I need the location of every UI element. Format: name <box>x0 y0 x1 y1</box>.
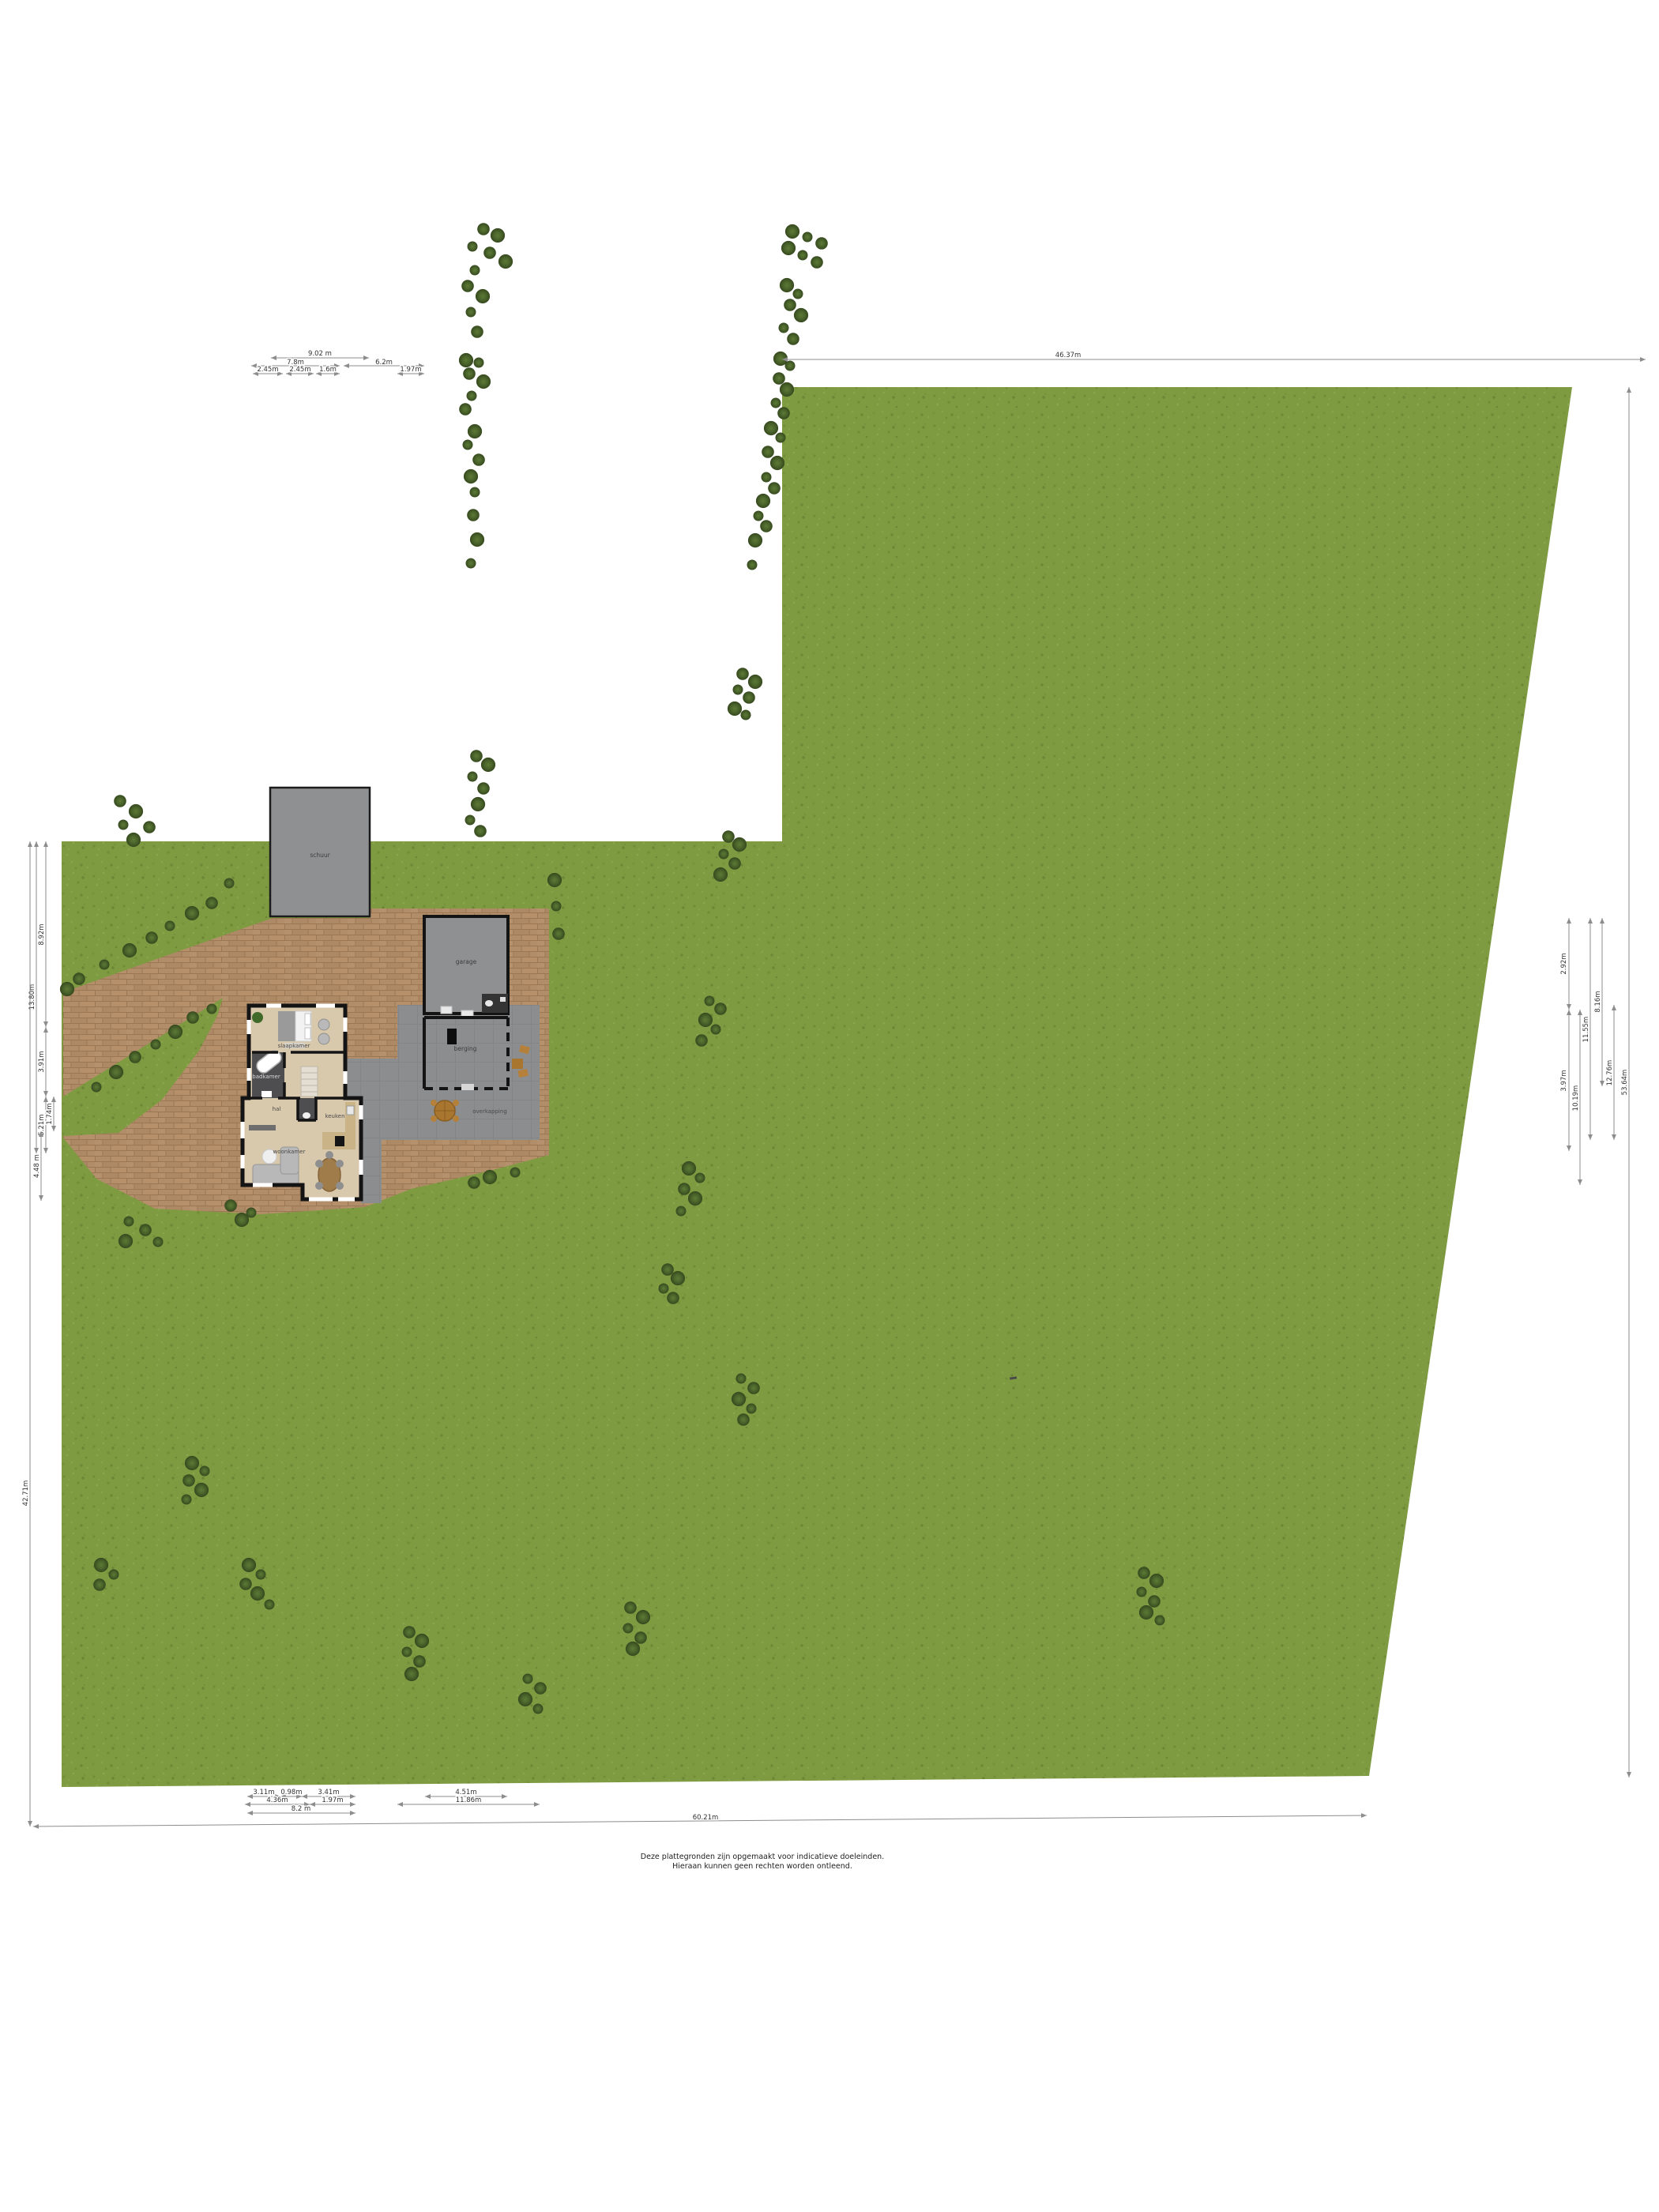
chair <box>318 1019 329 1030</box>
tree <box>811 256 823 269</box>
tree <box>461 280 474 292</box>
chair <box>318 1033 329 1044</box>
disclaimer-line1: Deze plattegronden zijn opgemaakt voor i… <box>641 1853 884 1861</box>
tree <box>471 797 485 811</box>
tree <box>682 1161 696 1176</box>
door-mat <box>441 1006 452 1014</box>
tree <box>626 1642 640 1656</box>
tree <box>661 1263 674 1276</box>
tree <box>476 374 491 389</box>
tree <box>741 710 751 720</box>
tree <box>518 1692 532 1706</box>
hall-label: hal <box>273 1106 281 1112</box>
tree <box>182 1474 195 1487</box>
tree <box>60 982 74 996</box>
tree <box>552 927 565 940</box>
tree <box>470 487 480 498</box>
dimension-label: 46.37m <box>1055 352 1082 359</box>
tree <box>185 1456 199 1470</box>
tree <box>265 1600 275 1610</box>
tree <box>776 433 786 443</box>
dimension-label: 0.98m <box>280 1789 302 1796</box>
dimension-label: 2.45m <box>289 366 310 374</box>
dimension-label: 3.97m <box>1560 1070 1568 1091</box>
dimension-label: 5.21m <box>38 1114 46 1135</box>
tree <box>404 1667 419 1681</box>
dimension-label: 2.45m <box>257 366 278 374</box>
tree <box>470 532 484 547</box>
tree <box>468 772 478 782</box>
tree <box>224 1199 237 1212</box>
tree <box>498 254 513 269</box>
shed-label: schuur <box>310 852 330 859</box>
tree <box>468 424 482 438</box>
tree <box>748 533 762 547</box>
living-label: woonkamer <box>273 1149 306 1155</box>
tree <box>481 758 495 772</box>
tree <box>109 1570 119 1580</box>
tree <box>143 821 156 833</box>
tree <box>728 857 741 870</box>
tree <box>242 1558 256 1572</box>
dimension-label: 1.97m <box>400 366 421 374</box>
tree <box>1148 1595 1161 1608</box>
dimension-label: 1.74m <box>46 1103 54 1124</box>
tree <box>534 1682 547 1695</box>
tree <box>794 308 808 322</box>
tree <box>94 1558 108 1572</box>
tree <box>403 1626 416 1638</box>
dimension-label: 1.97m <box>322 1796 343 1804</box>
tree <box>736 668 749 680</box>
tree <box>1149 1574 1164 1588</box>
dimension-label: 11.86m <box>456 1796 482 1804</box>
dimension-label: 3.41m <box>318 1789 339 1796</box>
tree <box>118 1234 133 1248</box>
tree <box>551 901 562 912</box>
tree <box>168 1025 182 1039</box>
tree <box>109 1065 123 1079</box>
tree <box>186 1011 199 1024</box>
tree <box>523 1674 533 1684</box>
cooktop <box>335 1136 344 1146</box>
dimension-label: 11.55m <box>1582 1017 1590 1043</box>
tree <box>748 675 762 689</box>
tree <box>780 382 794 397</box>
site-plan: schuur garage berging overkapping <box>0 0 1659 2212</box>
bathroom-sink <box>261 1091 272 1097</box>
tree <box>547 873 562 887</box>
house: slaapkamer badkamer hal keuken woonkamer <box>243 1006 361 1199</box>
dimension-label: 2.92m <box>1560 953 1568 974</box>
tree <box>459 403 472 416</box>
tree <box>768 482 781 495</box>
tree <box>1137 1587 1147 1597</box>
stove <box>447 1029 457 1044</box>
tree <box>636 1610 650 1624</box>
tree <box>770 456 784 470</box>
tree <box>815 237 828 250</box>
tree <box>472 453 485 466</box>
tree <box>722 830 735 843</box>
tree <box>182 1495 192 1505</box>
tree <box>736 1374 747 1384</box>
chair <box>336 1182 344 1190</box>
tree <box>139 1224 152 1236</box>
tree <box>676 1206 687 1217</box>
tree <box>239 1578 252 1590</box>
tree <box>466 559 476 569</box>
tree <box>784 299 796 311</box>
tree <box>474 825 487 837</box>
disclaimer: Deze plattegronden zijn opgemaakt voor i… <box>641 1853 884 1871</box>
tree <box>634 1631 647 1644</box>
dimension-label: 53.64m <box>1621 1070 1629 1096</box>
tree <box>250 1586 265 1601</box>
tree <box>145 931 158 944</box>
tree <box>785 224 799 239</box>
tree <box>510 1168 521 1178</box>
tree <box>468 1176 480 1189</box>
tree <box>92 1082 102 1093</box>
tree <box>762 472 772 483</box>
dimension-label: 4.48 m <box>33 1154 41 1178</box>
tree <box>100 960 110 970</box>
tree <box>1138 1567 1150 1579</box>
dimension-label: 3.11m <box>253 1789 274 1796</box>
tree <box>732 1392 746 1406</box>
door-mat <box>461 1084 474 1090</box>
tree <box>705 996 715 1006</box>
tree <box>470 265 480 276</box>
dimension-label: 3.91m <box>38 1051 46 1072</box>
tree <box>780 278 794 292</box>
tree <box>474 358 484 368</box>
tree <box>719 849 729 860</box>
tree <box>667 1292 679 1304</box>
tree <box>471 325 483 338</box>
tree <box>698 1013 713 1027</box>
dimension-label: 4.51m <box>455 1789 476 1796</box>
tree <box>756 494 770 508</box>
tree <box>129 1051 141 1063</box>
tree <box>477 223 490 235</box>
dimension-label: 8.2 m <box>292 1805 311 1813</box>
dimension-label: 8.16m <box>1594 991 1602 1012</box>
tree <box>798 250 808 261</box>
tree <box>465 815 476 826</box>
tree <box>777 407 790 419</box>
tree <box>1155 1616 1165 1626</box>
tree <box>205 897 218 909</box>
tree <box>483 246 496 259</box>
tree <box>463 440 473 450</box>
tree <box>118 820 129 830</box>
tree <box>737 1413 750 1426</box>
tree <box>688 1191 702 1206</box>
tree <box>194 1483 209 1497</box>
tree <box>623 1623 634 1634</box>
chair <box>315 1160 323 1168</box>
tree <box>803 232 813 243</box>
tree <box>624 1601 637 1614</box>
chair <box>336 1160 344 1168</box>
shed: schuur <box>270 788 370 916</box>
tree <box>1139 1605 1153 1619</box>
tree <box>165 921 175 931</box>
tree <box>714 1003 727 1015</box>
tree <box>695 1173 705 1183</box>
storage-room: berging <box>424 1018 508 1090</box>
tree <box>126 833 141 847</box>
dimension-label: 1.6m <box>319 366 337 374</box>
tree <box>124 1217 134 1227</box>
tree <box>402 1647 412 1657</box>
tree <box>93 1578 106 1591</box>
tree <box>779 323 789 333</box>
tree <box>153 1237 164 1247</box>
tree <box>483 1170 497 1184</box>
tree <box>711 1025 721 1035</box>
tree <box>695 1034 708 1047</box>
tree <box>713 867 728 882</box>
storage-label: berging <box>454 1045 477 1052</box>
tree <box>733 685 743 695</box>
tree <box>785 361 796 371</box>
garage: garage <box>424 916 508 1018</box>
disclaimer-line2: Hieraan kunnen geen rechten worden ontle… <box>672 1862 852 1871</box>
tree <box>728 702 742 716</box>
tree <box>764 421 778 435</box>
tree <box>747 1404 757 1414</box>
dimension-label: 42.71m <box>22 1480 30 1507</box>
tree <box>256 1570 266 1580</box>
tree <box>73 972 85 985</box>
tree <box>743 691 755 704</box>
tree <box>464 469 478 483</box>
tree <box>468 242 478 252</box>
dimension-label: 12.76m <box>1606 1060 1614 1086</box>
wc <box>303 1112 310 1119</box>
tree <box>793 289 803 299</box>
garage-label: garage <box>456 958 477 965</box>
bathroom-label: badkamer <box>252 1074 280 1080</box>
sideboard <box>249 1125 276 1130</box>
dimension-label: 10.19m <box>1572 1085 1580 1112</box>
tree <box>459 353 473 367</box>
tree <box>491 228 505 243</box>
tree <box>678 1183 690 1195</box>
tree <box>732 837 747 852</box>
dimension-label: 6.2m <box>375 359 393 367</box>
tree <box>224 878 235 889</box>
tree <box>470 750 483 762</box>
tree <box>151 1040 161 1050</box>
tree <box>771 398 781 408</box>
tree <box>476 289 490 303</box>
tree <box>415 1634 429 1648</box>
chair <box>315 1182 323 1190</box>
tree <box>466 307 476 318</box>
dimension-label: 4.36m <box>266 1796 288 1804</box>
tree <box>185 906 199 920</box>
sink <box>347 1106 354 1115</box>
tree <box>754 511 764 521</box>
canopy-label: overkapping <box>472 1108 507 1115</box>
chair <box>325 1151 333 1159</box>
tree <box>659 1284 669 1294</box>
tree <box>760 520 773 532</box>
side-table <box>512 1059 523 1069</box>
tree <box>747 1382 760 1394</box>
tree <box>762 446 774 458</box>
plant <box>252 1012 263 1023</box>
tree <box>207 1004 217 1014</box>
tree <box>787 333 799 345</box>
tree <box>413 1655 426 1668</box>
bedroom-label: slaapkamer <box>278 1043 310 1049</box>
tree <box>129 804 143 818</box>
tree <box>463 367 476 380</box>
tree <box>773 372 785 385</box>
tree <box>200 1466 210 1477</box>
tree <box>477 782 490 795</box>
tree <box>533 1704 544 1714</box>
tree <box>747 560 758 570</box>
tree <box>671 1271 685 1285</box>
tree <box>122 943 137 957</box>
dimension-label: 9.02 m <box>308 350 332 358</box>
tree <box>246 1208 257 1218</box>
dimension-label: 8.92m <box>38 924 46 945</box>
kitchen-label: keuken <box>325 1113 344 1119</box>
dimension-label: 60.21m <box>693 1814 719 1822</box>
tree <box>467 391 477 401</box>
tree <box>114 795 126 807</box>
tree <box>467 509 480 521</box>
tree <box>781 241 796 255</box>
